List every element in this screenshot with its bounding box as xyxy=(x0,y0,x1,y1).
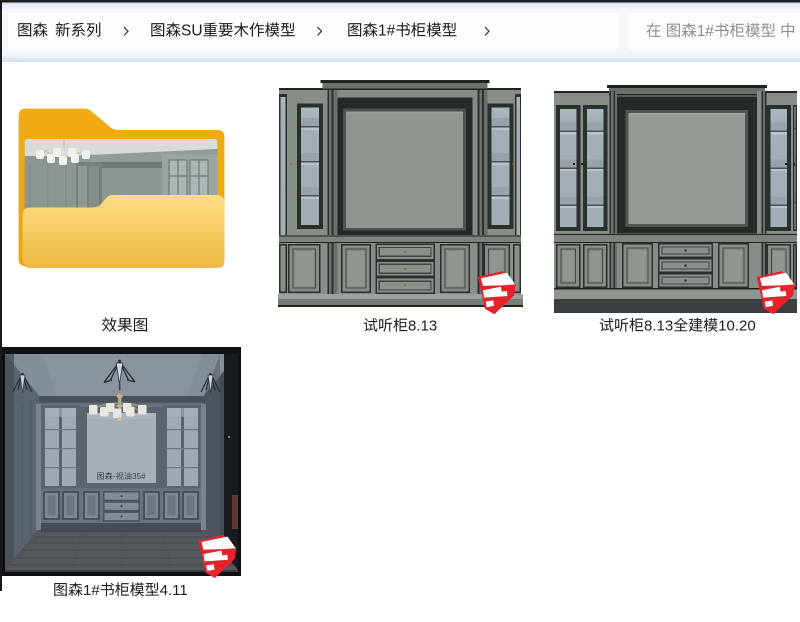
svg-text:8.13: 8.13 xyxy=(644,318,673,335)
svg-text:1#: 1# xyxy=(83,582,100,599)
svg-text:1#: 1# xyxy=(378,23,396,40)
svg-text:SU: SU xyxy=(181,23,203,40)
svg-text:-: - xyxy=(113,472,116,481)
svg-text:1#: 1# xyxy=(697,23,715,40)
svg-text:35#: 35# xyxy=(132,472,146,481)
svg-text:10.20: 10.20 xyxy=(718,318,756,335)
svg-text:4.11: 4.11 xyxy=(160,582,188,599)
svg-text:8.13: 8.13 xyxy=(408,318,437,335)
